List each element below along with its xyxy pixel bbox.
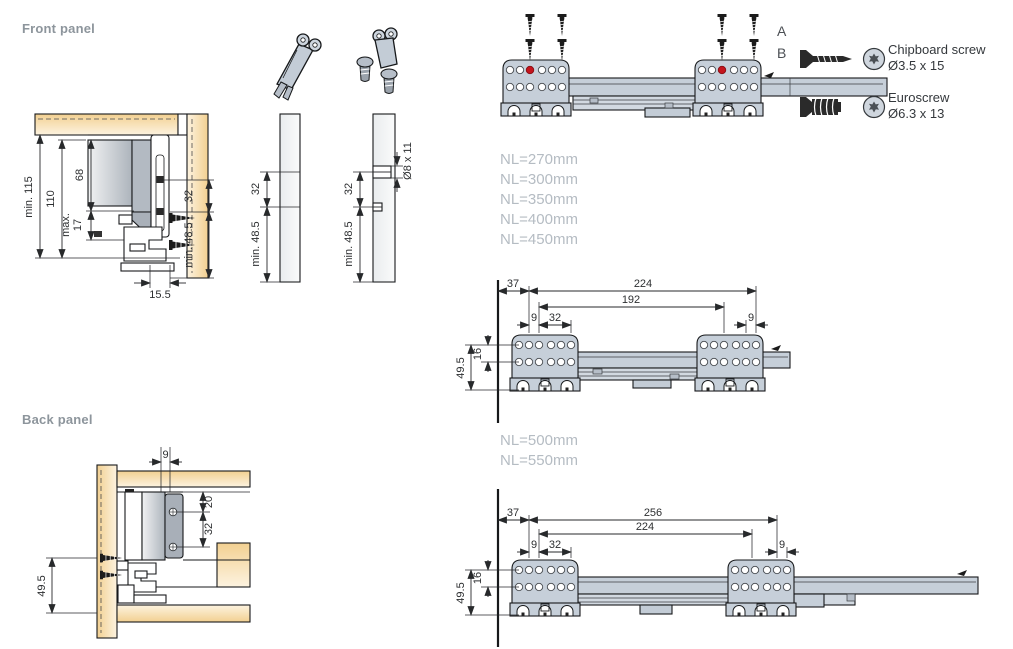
- position-a-label: A: [777, 23, 787, 39]
- euroscrew-name: Euroscrew: [888, 90, 950, 105]
- euroscrew-size: Ø6.3 x 13: [888, 106, 944, 121]
- screw-legend: Chipboard screw Ø3.5 x 15 Euroscrew Ø6.3…: [795, 30, 1013, 130]
- dim-110: 110: [45, 190, 57, 208]
- back-panel-section-drawing: 9 20 32 49.5: [40, 435, 255, 649]
- nominal-length-item: NL=400mm: [500, 210, 578, 230]
- nominal-length-item: NL=300mm: [500, 170, 578, 190]
- chipboard-screw-size: Ø3.5 x 15: [888, 58, 944, 73]
- dim-16: 16: [472, 572, 484, 584]
- nominal-length-item: NL=550mm: [500, 451, 578, 471]
- dim-49-5: 49.5: [455, 357, 467, 378]
- dim-224: 224: [634, 278, 652, 290]
- nominal-length-item: NL=270mm: [500, 150, 578, 170]
- dim-49-5: 49.5: [36, 575, 48, 596]
- dim-9: 9: [162, 449, 168, 461]
- dim-192: 192: [622, 294, 640, 306]
- dim-49-5: 49.5: [455, 582, 467, 603]
- torx-head-icon: [864, 97, 885, 118]
- dim-68: 68: [74, 169, 86, 181]
- dim-32: 32: [250, 183, 262, 195]
- position-b-label: B: [777, 45, 786, 61]
- dim-max-label: max.: [60, 213, 72, 237]
- screw-icon: [526, 14, 759, 61]
- front-bracket-icons: [255, 22, 435, 114]
- chipboard-screw-icon: [800, 50, 852, 68]
- dim-32: 32: [549, 539, 561, 551]
- diagram-canvas: { "labels": { "front_panel": "Front pane…: [0, 0, 1013, 649]
- front-bracket-hook-icon: [274, 34, 321, 100]
- dim-9-right: 9: [748, 312, 754, 324]
- mounting-bracket-rear: [726, 560, 796, 616]
- mounting-bracket-front: [510, 560, 580, 616]
- nominal-length-list-short: NL=270mm NL=300mm NL=350mm NL=400mm NL=4…: [500, 150, 578, 250]
- rail-arrow-icon: [771, 345, 781, 351]
- panel-plain: [280, 114, 300, 282]
- dim-256: 256: [644, 507, 662, 519]
- front-panel-label: Front panel: [22, 21, 95, 36]
- mounting-bracket-front: [510, 335, 580, 391]
- dim-drill: Ø8 x 11: [402, 142, 414, 180]
- nominal-length-item: NL=350mm: [500, 190, 578, 210]
- panel-plain-drawing: 32 min. 48.5: [250, 108, 320, 298]
- dim-9-left: 9: [531, 539, 537, 551]
- dim-32: 32: [183, 190, 195, 202]
- dim-32: 32: [343, 183, 355, 195]
- dim-min-48-5: min. 48.5: [250, 221, 262, 266]
- mounting-bracket-rear: [695, 335, 765, 391]
- dim-min-48-5: min. 48.5: [183, 222, 195, 267]
- dim-16: 16: [472, 348, 484, 360]
- dim-224: 224: [636, 521, 654, 533]
- slide-profile-section: [117, 561, 166, 603]
- mounting-bracket-front: [501, 60, 571, 116]
- chipboard-screw-name: Chipboard screw: [888, 42, 986, 57]
- nominal-length-item: NL=500mm: [500, 431, 578, 451]
- back-panel-label: Back panel: [22, 412, 93, 427]
- dim-15-5: 15.5: [149, 289, 170, 301]
- dim-9-left: 9: [531, 312, 537, 324]
- dim-37: 37: [507, 278, 519, 290]
- euroscrew-icon: [800, 97, 841, 117]
- front-bracket-screws-icon: [357, 28, 397, 94]
- front-panel-section-drawing: min. 115 110 68 max. 17 32 min. 48.5 15.…: [20, 105, 235, 320]
- bottom-slide-drawing: 37 256 224 9 32 9 16 49.5: [455, 487, 1013, 649]
- panel-drilled: [373, 114, 395, 282]
- dim-32: 32: [203, 523, 215, 535]
- rail-arrow-icon: [957, 570, 967, 576]
- dim-37: 37: [507, 507, 519, 519]
- panel-drilled-drawing: 32 min. 48.5 Ø8 x 11: [345, 108, 435, 298]
- dim-min-115: min. 115: [23, 176, 35, 217]
- nominal-length-list-long: NL=500mm NL=550mm: [500, 431, 578, 471]
- torx-head-icon: [864, 49, 885, 70]
- dim-9-right: 9: [779, 539, 785, 551]
- rail-arrow-icon: [764, 72, 774, 78]
- dim-32: 32: [549, 312, 561, 324]
- dim-20: 20: [203, 496, 215, 508]
- dim-17: 17: [72, 219, 84, 231]
- mid-slide-drawing: 37 224 192 9 32 9 16 49.5: [455, 276, 935, 428]
- dim-min-48-5: min. 48.5: [343, 221, 355, 266]
- mounting-bracket-rear: [693, 60, 763, 116]
- nominal-length-item: NL=450mm: [500, 230, 578, 250]
